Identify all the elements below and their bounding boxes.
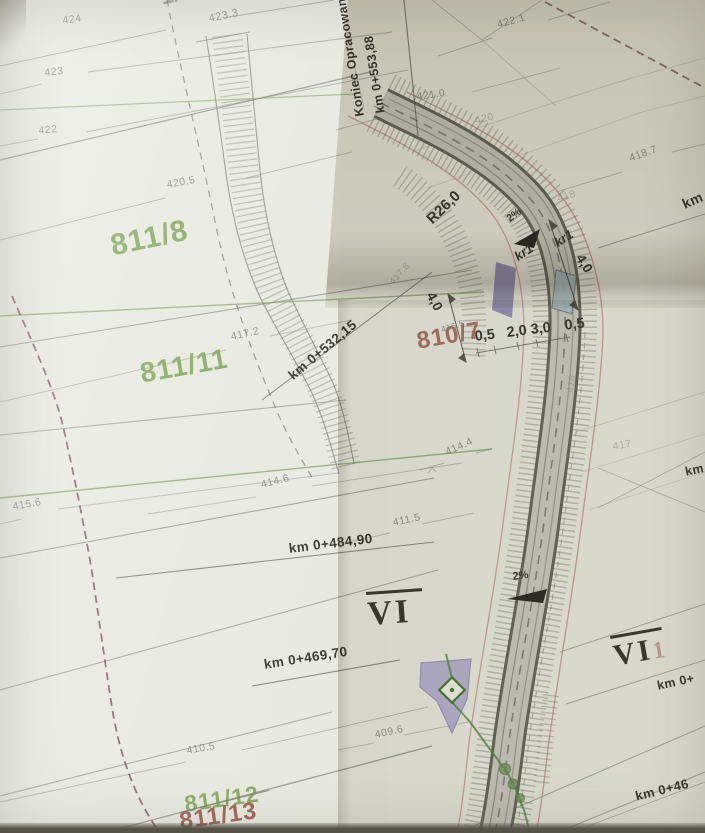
section-marker-text: VI: [366, 593, 412, 633]
tree-symbol-icon: [508, 779, 518, 789]
width-label: 0,5: [564, 316, 586, 334]
contour-label: 424: [62, 13, 82, 26]
section-marker-vi-center: VI: [366, 588, 425, 634]
slope-label-bottom: 2%: [512, 570, 529, 583]
width-label: 0,5: [474, 327, 496, 345]
plan-linework: [0, 0, 705, 833]
dashed-boundaries: [12, 0, 705, 833]
contour-label: 423: [44, 66, 64, 78]
road: [342, 0, 603, 833]
contour-lines: [0, 0, 705, 802]
contour-label: 422: [38, 124, 58, 136]
width-label: 3,0: [530, 320, 552, 338]
plan-photo: Koniec Opracowania km 0+553,88 811/8 811…: [0, 0, 705, 833]
width-label: 2,0: [506, 323, 528, 341]
tree-symbol-icon: [516, 794, 525, 803]
culvert-structure-purple: [492, 262, 516, 318]
tree-symbol-icon: [500, 764, 511, 775]
parcel-boundary-lines: [0, 72, 705, 833]
section-marker-text: VI: [611, 633, 655, 672]
